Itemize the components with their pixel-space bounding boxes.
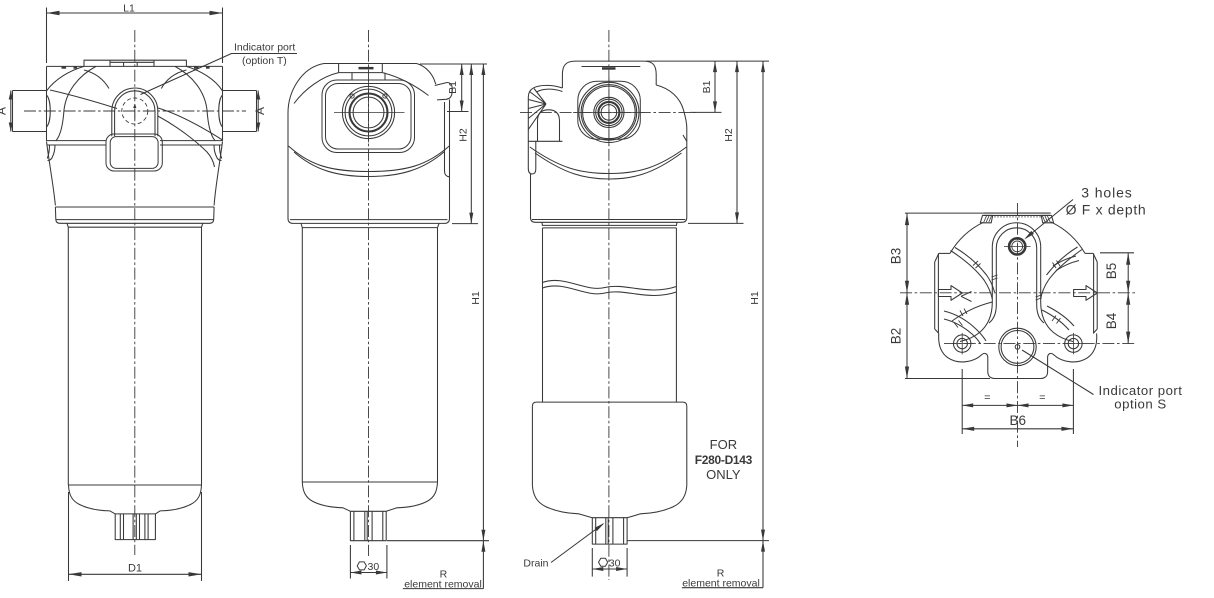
svg-text:FOR: FOR (710, 437, 737, 452)
svg-text:ONLY: ONLY (706, 467, 741, 482)
svg-text:B4: B4 (1104, 312, 1119, 329)
svg-text:H2: H2 (723, 128, 735, 142)
svg-text:A: A (0, 107, 9, 115)
svg-text:Ø F x depth: Ø F x depth (1066, 201, 1147, 217)
svg-text:B2: B2 (889, 328, 904, 345)
svg-text:element removal: element removal (682, 577, 760, 589)
svg-text:=: = (984, 392, 990, 404)
svg-text:B1: B1 (447, 81, 459, 94)
svg-text:30: 30 (368, 561, 380, 573)
svg-text:H1: H1 (470, 291, 482, 305)
svg-text:(option T): (option T) (242, 55, 287, 67)
svg-text:F280-D143: F280-D143 (695, 453, 753, 467)
svg-text:30: 30 (609, 557, 621, 569)
svg-text:D1: D1 (128, 563, 142, 575)
svg-text:=: = (1039, 392, 1045, 404)
svg-text:B6: B6 (1009, 413, 1026, 428)
svg-text:option S: option S (1114, 397, 1166, 412)
svg-text:H2: H2 (458, 128, 470, 142)
svg-text:H1: H1 (749, 291, 761, 305)
svg-text:B1: B1 (701, 80, 713, 93)
svg-text:3 holes: 3 holes (1081, 184, 1132, 200)
svg-text:B3: B3 (889, 248, 904, 265)
svg-text:Indicator port: Indicator port (234, 41, 295, 53)
svg-text:Drain: Drain (523, 558, 548, 570)
svg-text:L1: L1 (123, 2, 135, 14)
svg-text:A: A (253, 107, 267, 115)
svg-text:element removal: element removal (404, 578, 482, 590)
svg-text:B5: B5 (1104, 263, 1119, 280)
